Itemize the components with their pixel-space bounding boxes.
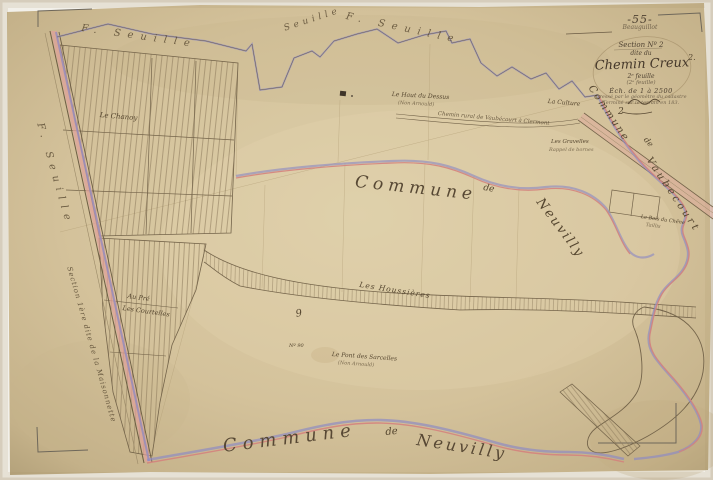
numeral-two-a: 2 xyxy=(618,108,624,117)
cartouche-feuille-2: (2ᵉ feuille) xyxy=(606,81,676,87)
lieu-no90: Nº 90 xyxy=(289,344,304,349)
cartouche-title: Chemin Creux xyxy=(592,56,692,72)
cartouche-section-line: Section Nº 2 xyxy=(596,42,686,49)
lieu-gravelles-1: Les Gravelles xyxy=(551,140,589,146)
cartouche-stamp: Beauguillot xyxy=(580,25,700,31)
commune-bottom-de: de xyxy=(385,427,398,438)
lieu-gravelles-2: Rappel de bornes xyxy=(549,148,594,153)
cadastral-map-scan: -55- Beauguillot Section Nº 2 dite du Ch… xyxy=(0,0,713,480)
commune-center-de: de xyxy=(482,184,494,195)
numeral-two-b: 2. xyxy=(688,54,696,62)
